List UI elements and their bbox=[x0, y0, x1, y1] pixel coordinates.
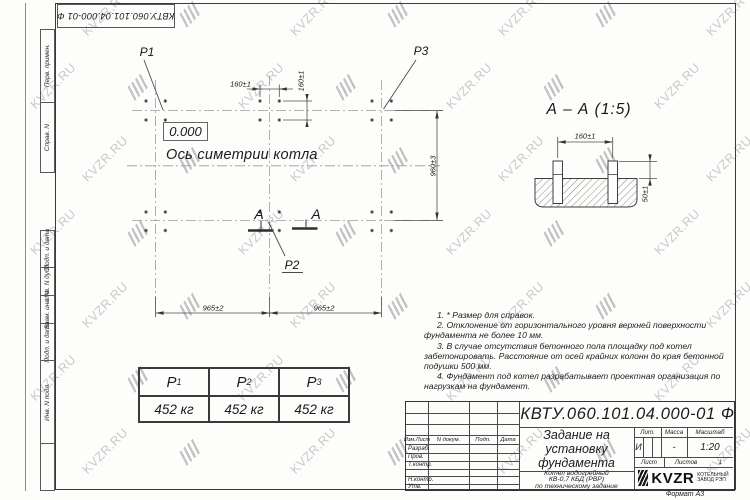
kvzr-logo-text: KVZR bbox=[651, 470, 694, 487]
tb-mass-label: Масса bbox=[661, 427, 687, 437]
doc-number-stamp-text: КВТУ.060.101.04.000-01 Ф bbox=[57, 11, 174, 21]
tb-logo-cell: KVZR КОТЕЛЬНЫЙ ЗАВОД РЭП bbox=[634, 467, 733, 489]
title-block: Изм.Лист N докум. Подп. Дата Разраб. Про… bbox=[405, 401, 735, 491]
tb-col-data: Дата bbox=[497, 435, 519, 444]
kvzr-logo-mark-icon bbox=[638, 470, 648, 486]
tb-scale-value: 1:20 bbox=[687, 437, 733, 457]
tb-doc-number: КВТУ.060.101.04.000-01 Ф bbox=[519, 402, 736, 427]
tb-scale-label: Масштаб bbox=[687, 427, 733, 437]
drawing-sheet: KVZR.RUKVZR.RUKVZR.RUKVZR.RUKVZR.RUKVZR.… bbox=[0, 0, 750, 500]
note-1: 1. * Размер для справок. bbox=[424, 310, 737, 320]
loads-value-p3: 452 кг bbox=[279, 396, 349, 422]
margin-cell-podp-data-2: Подп. и дата bbox=[40, 323, 55, 361]
tb-row-utv: Утв. bbox=[406, 484, 430, 490]
margin-label: Инв. N подл. bbox=[44, 383, 51, 421]
margin-label: Перв. примен. bbox=[44, 44, 51, 87]
tb-title: Задание на установку фундамента bbox=[519, 427, 634, 471]
level-mark-box: 0.000 bbox=[163, 122, 208, 141]
margin-label: Подп. и дата bbox=[44, 322, 51, 363]
tb-mass-value: - bbox=[661, 437, 687, 457]
loads-header-p1: Р1 bbox=[139, 368, 209, 396]
margin-cell-blank bbox=[40, 443, 55, 491]
note-3: 3. В случае отсутствия бетонного пола пл… bbox=[424, 341, 737, 372]
tb-sheet-label: Лист bbox=[634, 457, 664, 467]
tb-row-blank bbox=[406, 469, 430, 476]
tb-lit-value: И bbox=[634, 437, 643, 457]
axis-caption: Ось симетрии котла bbox=[166, 147, 318, 163]
tb-col-podp: Подп. bbox=[469, 435, 497, 444]
tb-row-tkontr: Т.контр. bbox=[406, 461, 430, 469]
tb-sheets-value: 1 bbox=[719, 459, 722, 466]
loads-table: Р1 Р2 Р3 452 кг 452 кг 452 кг bbox=[138, 367, 350, 423]
notes-block: 1. * Размер для справок. 2. Отклонение о… bbox=[424, 310, 737, 392]
tb-row-prov: Пров. bbox=[406, 453, 430, 461]
tb-row-razrab: Разраб. bbox=[406, 444, 430, 453]
loads-value-p1: 452 кг bbox=[139, 396, 209, 422]
note-2: 2. Отклонение от горизонтального уровня … bbox=[424, 320, 737, 340]
tb-col-izm-list: Изм.Лист bbox=[406, 435, 428, 444]
doc-number-stamp: КВТУ.060.101.04.000-01 Ф bbox=[57, 4, 175, 28]
tb-sheets-label: Листов bbox=[675, 459, 698, 466]
tb-col-n-dokum: N докум. bbox=[428, 435, 469, 444]
margin-label: Справ. N bbox=[44, 124, 51, 151]
format-note: Формат А3 bbox=[630, 491, 740, 498]
margin-cell-perv-primen: Перв. примен. bbox=[40, 29, 55, 103]
loads-header-p3: Р3 bbox=[279, 368, 349, 396]
loads-header-p2: Р2 bbox=[209, 368, 279, 396]
tb-row-nkontr: Н.контр. bbox=[406, 476, 430, 484]
margin-cell-sprav-n: Справ. N bbox=[40, 102, 55, 173]
tb-product: Котел водогрейный КВ-0,7 КБД (РВР) по те… bbox=[519, 471, 634, 490]
tb-lit-label: Лит. bbox=[634, 427, 661, 437]
margin-cell-vzam-inv: Взам. инв. N bbox=[40, 295, 55, 324]
margin-cell-inv-podl: Инв. N подл. bbox=[40, 360, 55, 444]
level-mark-value: 0.000 bbox=[169, 124, 202, 139]
sheet-edge-line bbox=[25, 3, 26, 491]
note-4: 4. Фундамент под котел разрабатывает про… bbox=[424, 371, 737, 391]
loads-value-p2: 452 кг bbox=[209, 396, 279, 422]
kvzr-logo-caption: КОТЕЛЬНЫЙ ЗАВОД РЭП bbox=[697, 473, 728, 484]
tb-sheets-cell: Листов 1 bbox=[664, 457, 733, 467]
